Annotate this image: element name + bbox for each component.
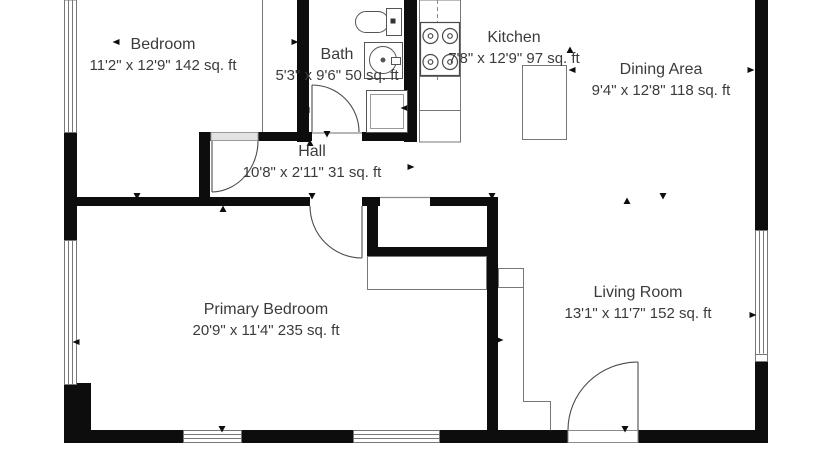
floor-plan-drawing bbox=[0, 0, 835, 467]
shower-icon bbox=[367, 91, 408, 133]
living-area-boundary bbox=[524, 288, 551, 431]
bedroom-door-threshold bbox=[211, 133, 258, 141]
entry-nook-box bbox=[499, 269, 524, 288]
door-swing-marker-icon bbox=[624, 198, 631, 205]
window-bottom-1 bbox=[184, 431, 242, 443]
toilet-icon bbox=[356, 9, 402, 36]
walls bbox=[64, 0, 768, 443]
door-swing-marker-icon bbox=[567, 47, 574, 54]
door-swing-marker-icon bbox=[113, 39, 120, 45]
wall-hall-left bbox=[199, 132, 210, 206]
door-swing-marker-icon bbox=[569, 67, 576, 73]
door-swing-marker-icon bbox=[220, 206, 227, 213]
door-swing-marker-icon bbox=[408, 164, 415, 170]
kitchen-island bbox=[523, 66, 567, 140]
floor-plan: Bedroom 11'2" x 12'9" 142 sq. ft Bath 5'… bbox=[0, 0, 835, 467]
window-bottom-2 bbox=[354, 431, 440, 443]
door-swing-marker-icon bbox=[497, 337, 504, 343]
front-door bbox=[568, 362, 638, 430]
bath-door bbox=[312, 85, 359, 132]
wall-right bbox=[755, 0, 768, 443]
front-door-threshold bbox=[568, 431, 638, 443]
wall-left-mid bbox=[64, 133, 77, 240]
bedroom-door bbox=[212, 141, 258, 192]
bath-fixtures bbox=[356, 9, 408, 133]
door-swing-marker-icon bbox=[748, 67, 755, 73]
wall-bedroom-bath bbox=[297, 0, 309, 142]
door-swing-marker-icon bbox=[324, 131, 331, 138]
door-swing-marker-icon bbox=[660, 193, 667, 200]
wall-primary-top bbox=[64, 197, 310, 206]
wall-stair-bottom bbox=[367, 247, 498, 256]
stove-icon bbox=[421, 23, 460, 76]
wall-hall-top-3 bbox=[362, 132, 404, 141]
wall-living-west bbox=[487, 197, 498, 443]
bathroom-sink-icon bbox=[365, 43, 403, 79]
window-living-right bbox=[756, 231, 768, 362]
stair-lower-run bbox=[368, 257, 487, 290]
primary-bedroom-door bbox=[310, 206, 362, 258]
window-primary-left bbox=[65, 241, 77, 385]
kitchen-fixtures bbox=[420, 0, 567, 142]
wall-hall-top-2 bbox=[258, 132, 312, 141]
window-bedroom-left bbox=[65, 0, 77, 133]
